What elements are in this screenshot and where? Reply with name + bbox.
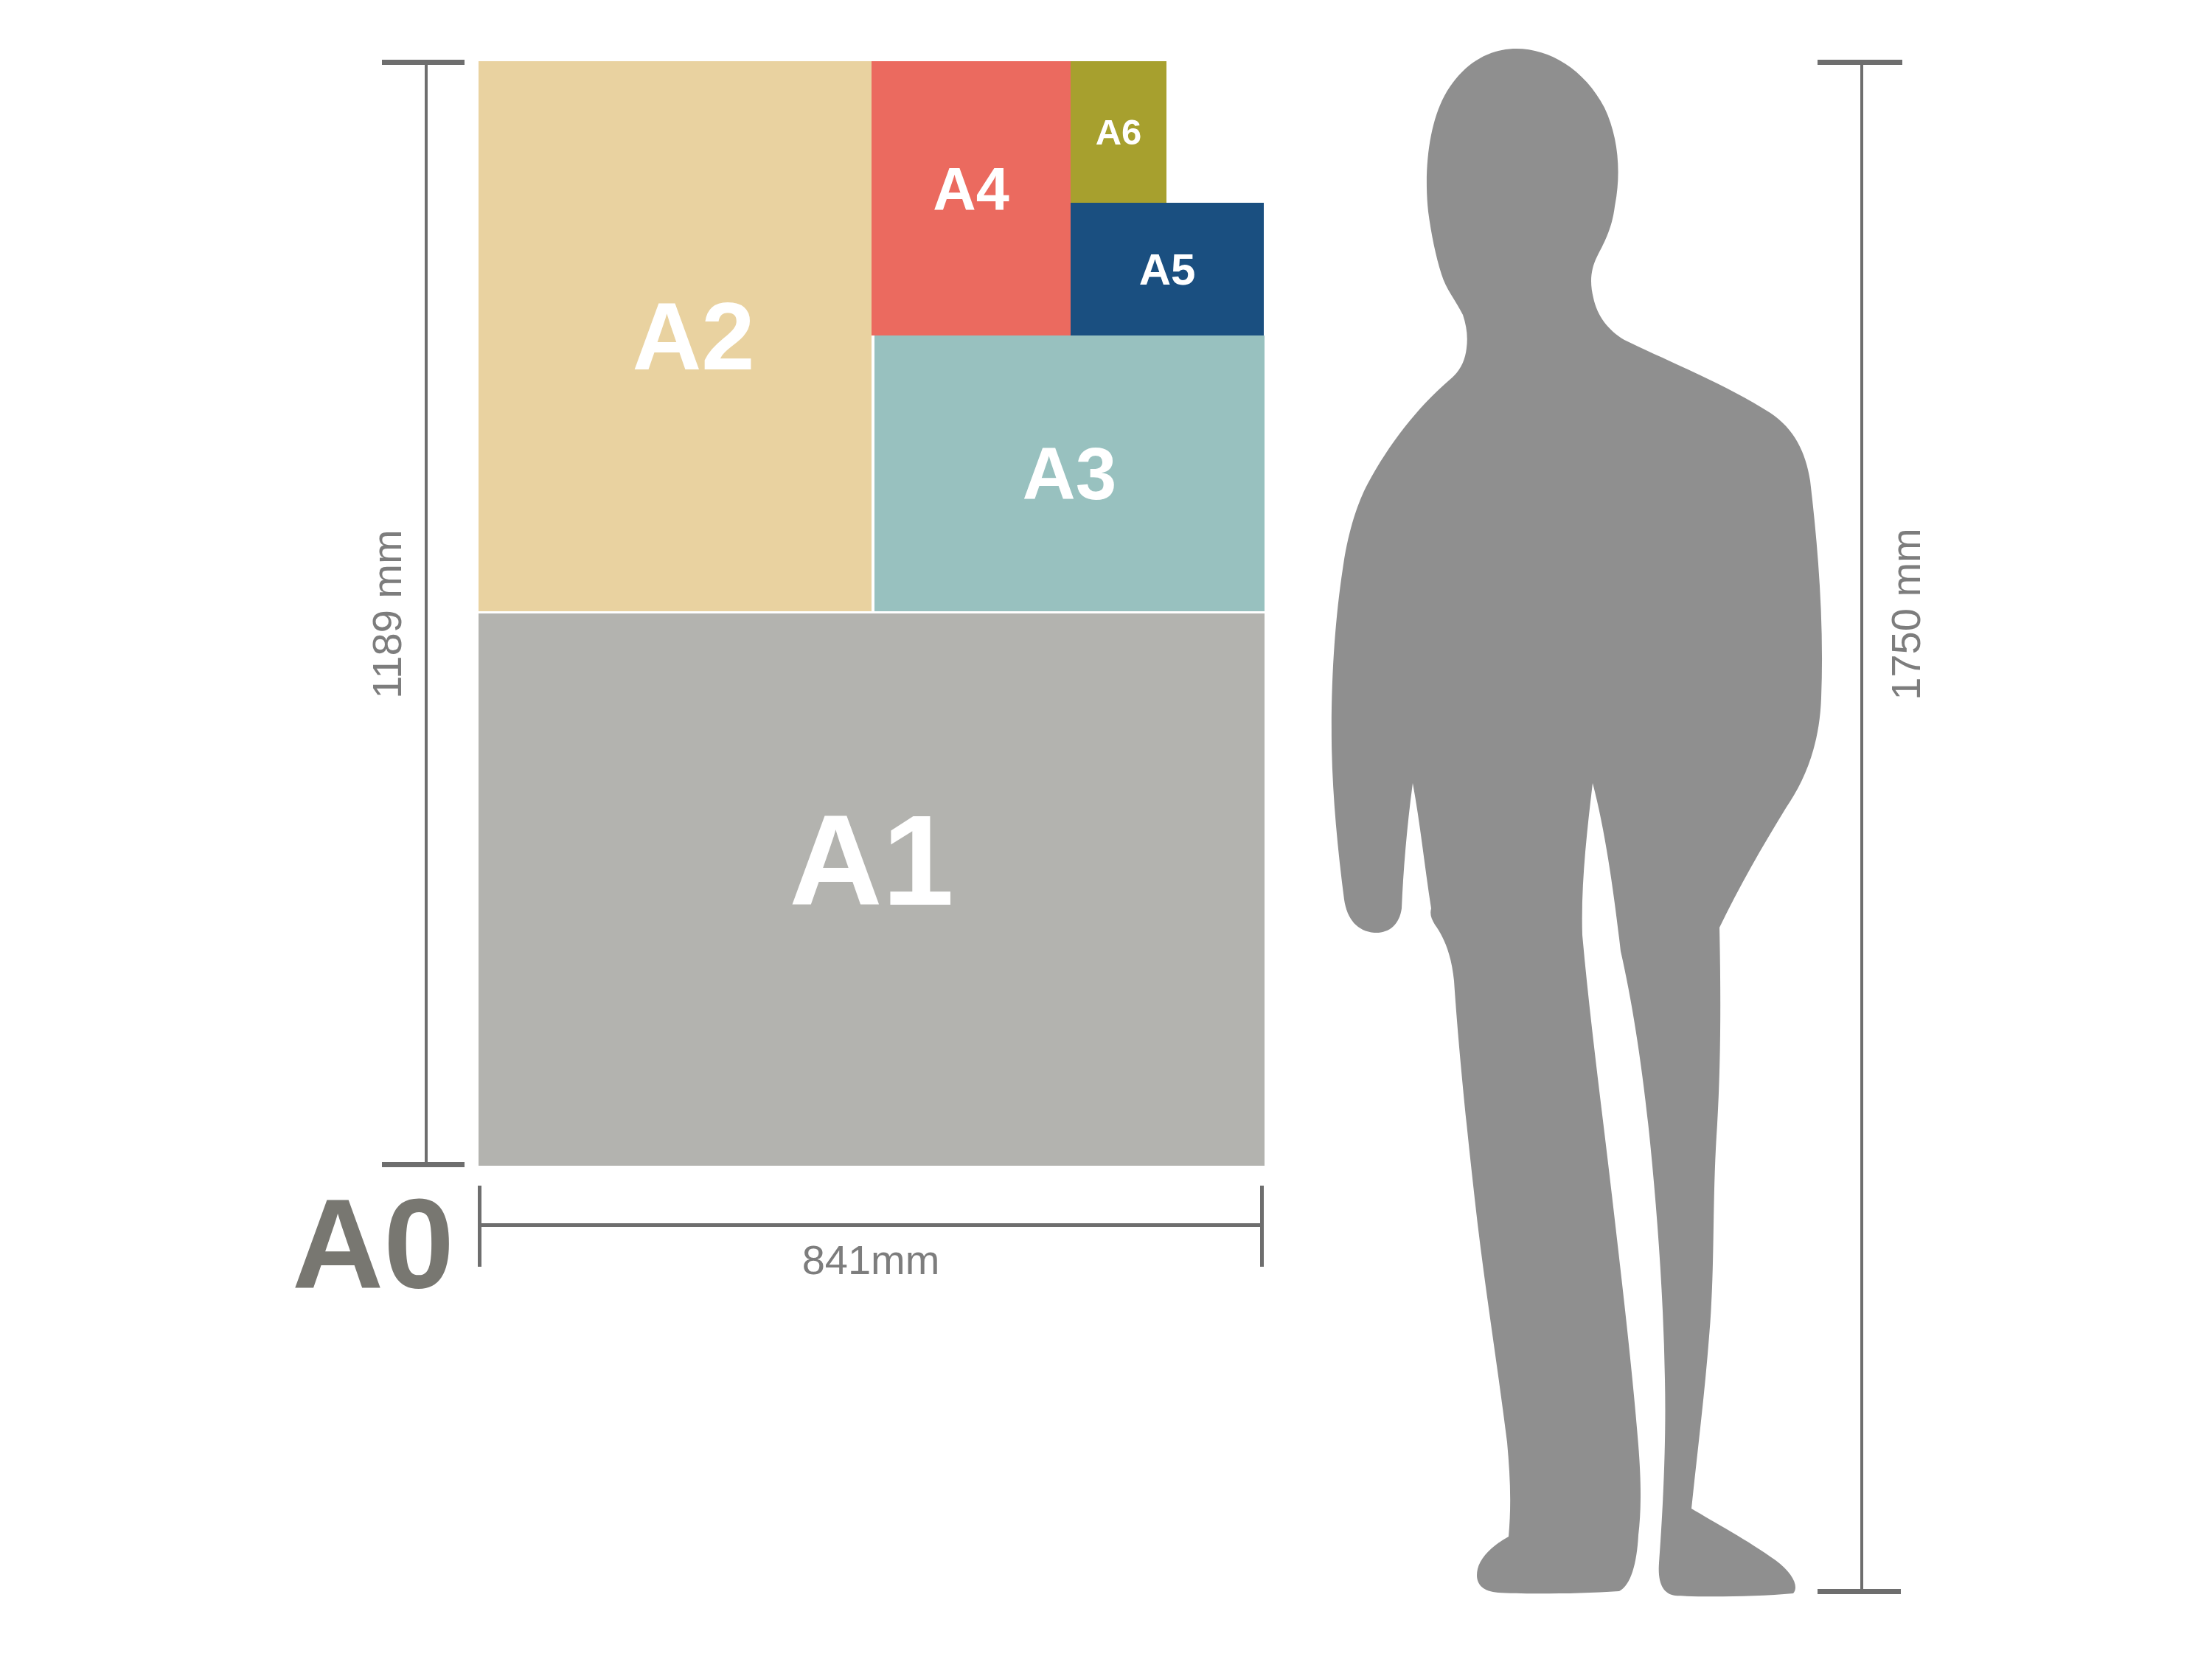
width-dimension-line — [479, 1223, 1262, 1227]
paper-height-value: 1189 mm — [363, 529, 411, 698]
paper-a2-label: A2 — [632, 281, 754, 392]
paper-width-value: 841mm — [479, 1236, 1262, 1284]
paper-a5: A5 — [1071, 203, 1264, 335]
paper-a1: A1 — [479, 613, 1265, 1166]
paper-a5-label: A5 — [1139, 244, 1196, 295]
paper-size-diagram: A2 A4 A6 A5 A3 A1 A0 1189 mm 841mm 1750 … — [0, 0, 2212, 1659]
height-dimension-tick-top — [382, 60, 465, 65]
paper-a0-label: A0 — [292, 1180, 454, 1307]
paper-a6-label: A6 — [1096, 111, 1142, 153]
paper-a4-label: A4 — [933, 155, 1009, 223]
paper-a3-label: A3 — [1023, 431, 1117, 516]
paper-a4: A4 — [872, 61, 1071, 335]
person-height-value: 1750 mm — [1882, 528, 1930, 700]
person-silhouette — [1320, 44, 1880, 1600]
paper-a2: A2 — [479, 61, 872, 611]
person-silhouette-shape — [1332, 49, 1822, 1596]
height-dimension-line — [425, 62, 428, 1165]
height-dimension-tick-bottom — [382, 1162, 465, 1167]
paper-a6: A6 — [1071, 61, 1166, 203]
paper-a1-label: A1 — [789, 786, 954, 934]
paper-a3: A3 — [874, 335, 1265, 611]
